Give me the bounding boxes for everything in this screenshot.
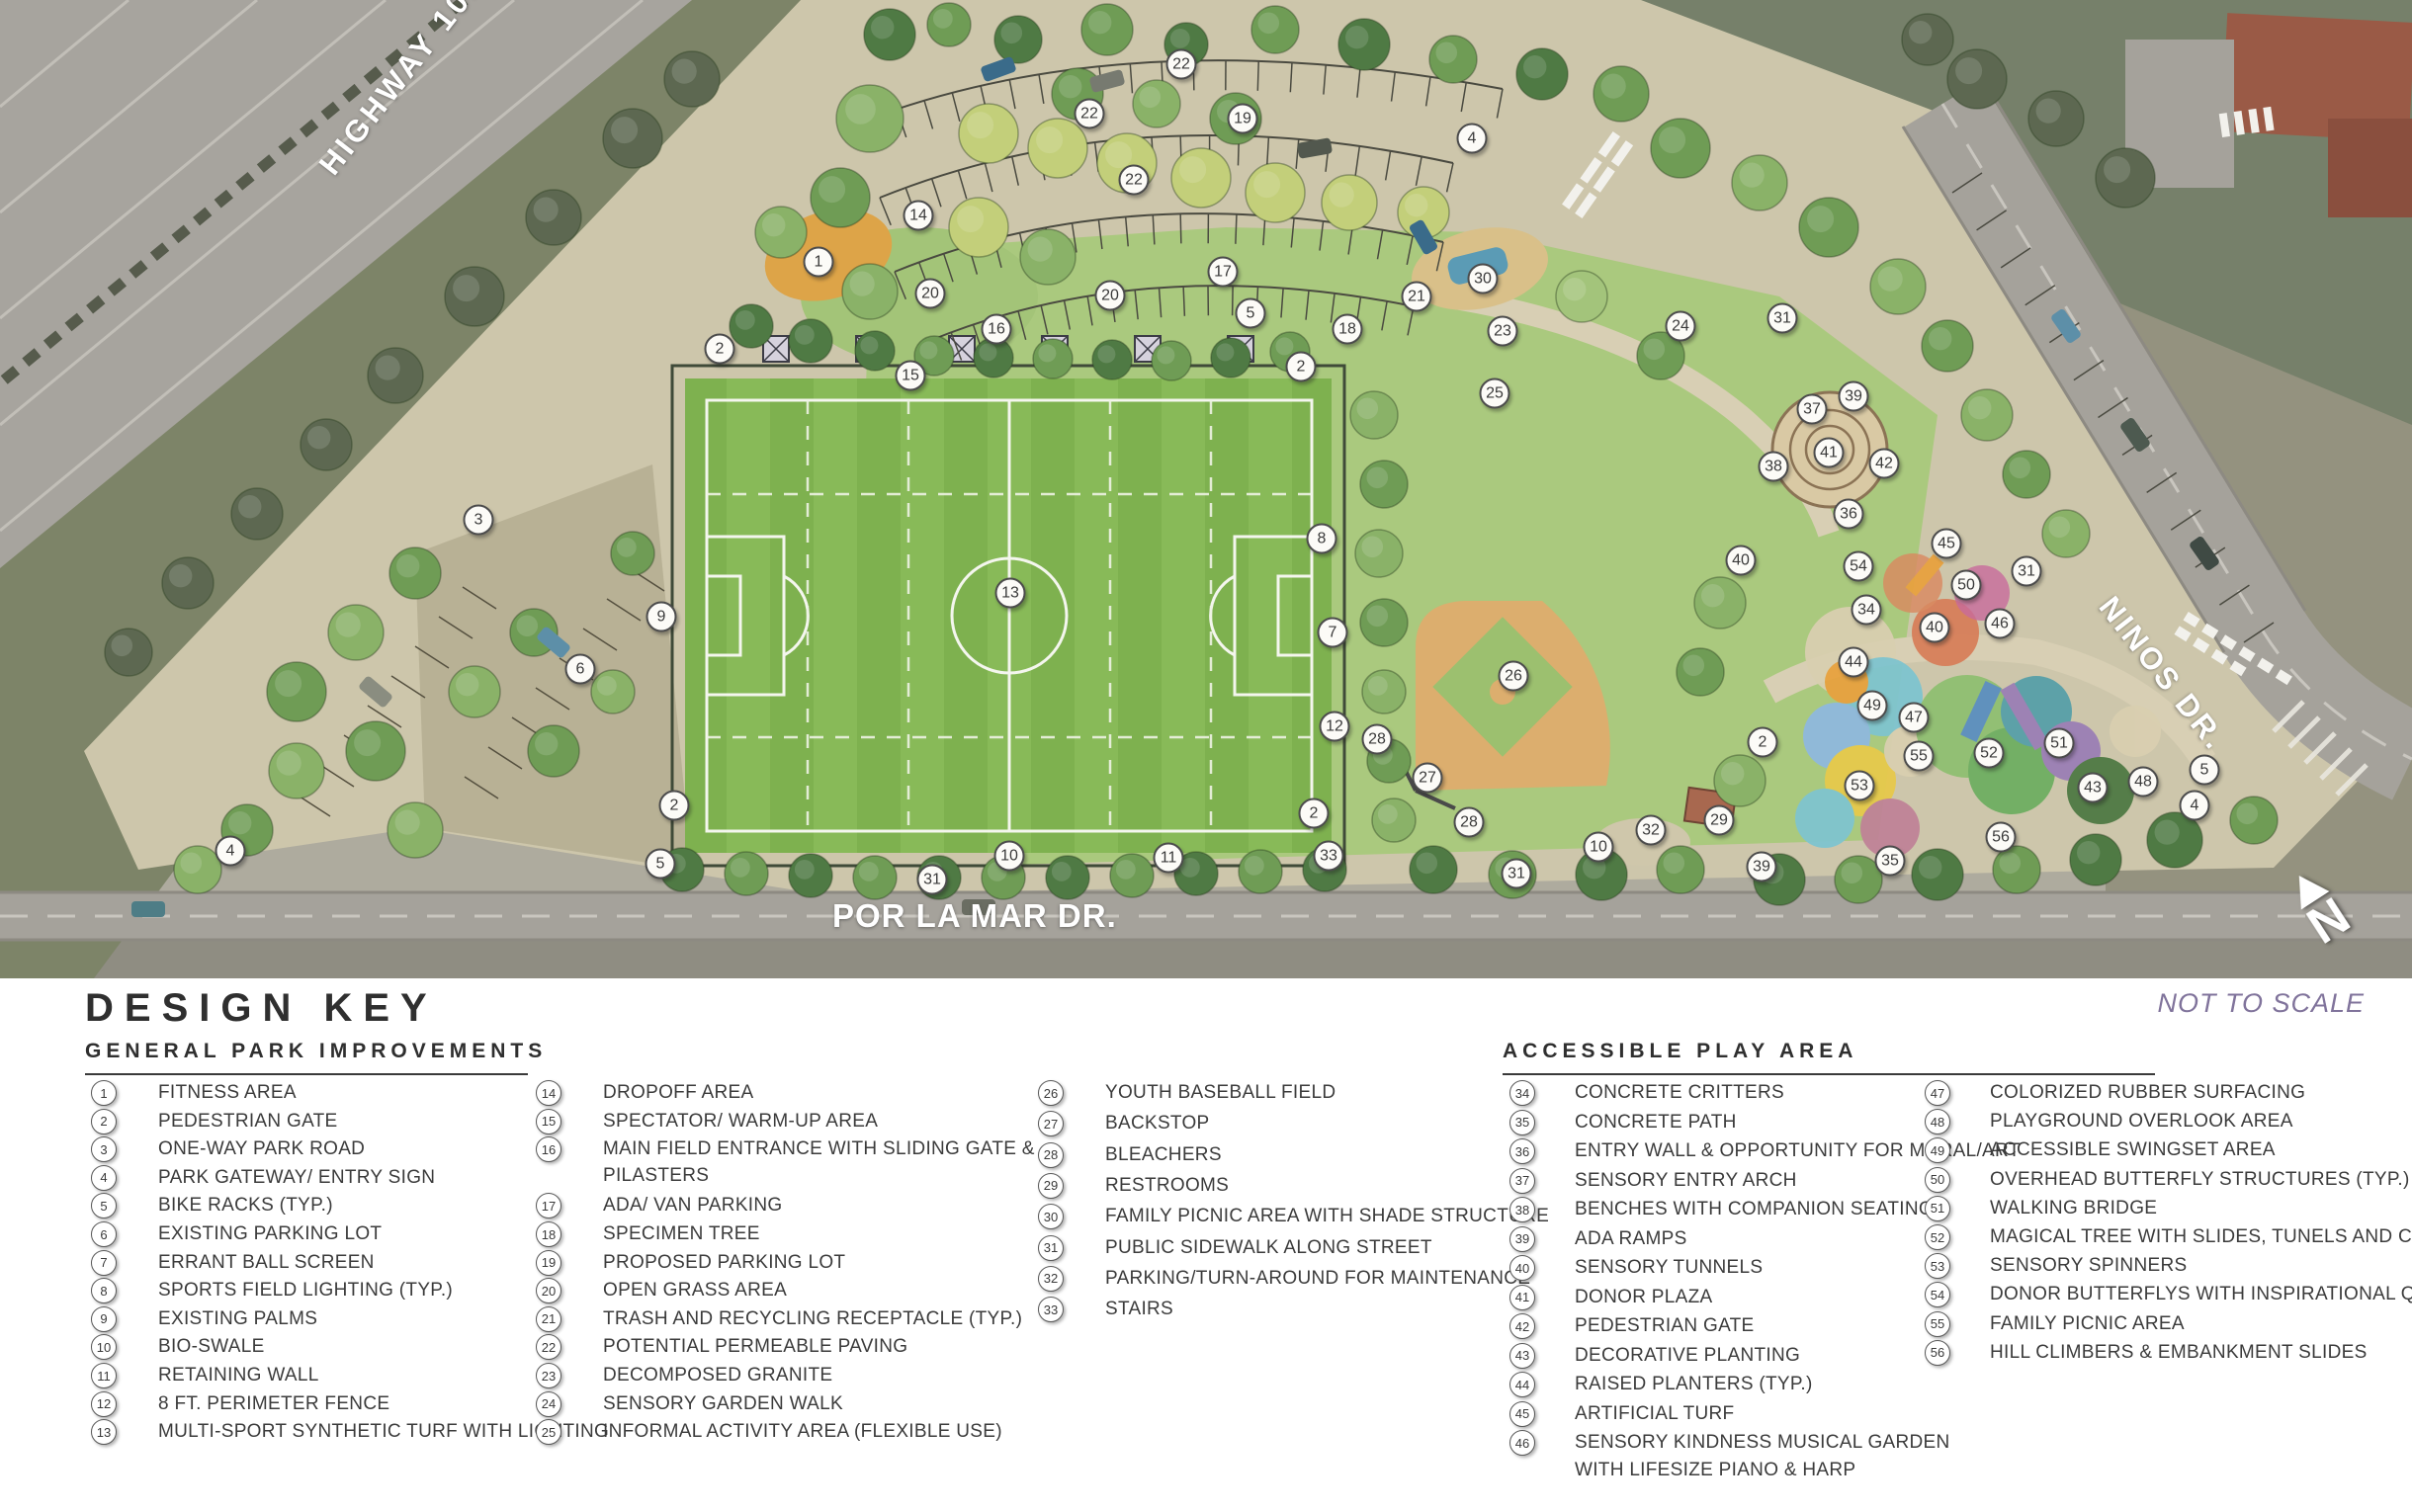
key-item-number: 53 <box>1925 1253 1950 1279</box>
key-item-label: EXISTING PALMS <box>158 1308 317 1330</box>
key-item-number: 39 <box>1509 1226 1535 1252</box>
plan-marker-36: 36 <box>1834 499 1864 530</box>
key-item-label: ERRANT BALL SCREEN <box>158 1252 375 1274</box>
plan-marker-34: 34 <box>1852 595 1882 626</box>
key-item-label: ARTIFICIAL TURF <box>1575 1403 1734 1425</box>
plan-marker-11: 11 <box>1154 843 1184 874</box>
plan-marker-31: 31 <box>2012 556 2042 587</box>
key-item-label: DONOR PLAZA <box>1575 1287 1713 1308</box>
plan-marker-49: 49 <box>1857 691 1888 721</box>
key-item-number: 10 <box>91 1334 117 1360</box>
plan-marker-40: 40 <box>1920 613 1950 643</box>
plan-marker-22: 22 <box>1166 49 1197 80</box>
plan-marker-44: 44 <box>1839 647 1869 678</box>
key-item-label: SENSORY ENTRY ARCH <box>1575 1170 1797 1192</box>
key-item-label: FAMILY PICNIC AREA WITH SHADE STRUCTURE <box>1105 1206 1549 1227</box>
key-item-number: 14 <box>536 1080 561 1106</box>
key-item-label: EXISTING PARKING LOT <box>158 1223 382 1245</box>
plan-marker-28: 28 <box>1454 807 1485 838</box>
plan-marker-28: 28 <box>1362 724 1393 755</box>
key-item-number: 1 <box>91 1080 117 1106</box>
key-item-label: SPORTS FIELD LIGHTING (TYP.) <box>158 1280 453 1302</box>
plan-marker-15: 15 <box>896 361 926 391</box>
key-item-label: BACKSTOP <box>1105 1113 1210 1134</box>
park-master-plan-page: HIGHWAY 101 POR LA MAR DR. NINOS DR. N 2… <box>0 0 2412 1512</box>
section-general-park-improvements: GENERAL PARK IMPROVEMENTS <box>85 1040 547 1063</box>
plan-marker-20: 20 <box>915 279 946 309</box>
key-item-label: PEDESTRIAN GATE <box>158 1111 338 1133</box>
plan-marker-31: 31 <box>1502 859 1532 889</box>
plan-marker-55: 55 <box>1904 741 1935 772</box>
key-item-label: 8 FT. PERIMETER FENCE <box>158 1393 389 1415</box>
key-item-label: DROPOFF AREA <box>603 1082 753 1104</box>
plan-marker-24: 24 <box>1666 311 1696 342</box>
key-item-label: TRASH AND RECYCLING RECEPTACLE (TYP.) <box>603 1308 1022 1330</box>
key-item-label: ONE-WAY PARK ROAD <box>158 1138 365 1160</box>
plan-marker-2: 2 <box>1748 727 1778 758</box>
key-item-number: 50 <box>1925 1167 1950 1193</box>
plan-marker-52: 52 <box>1974 738 2005 769</box>
plan-marker-6: 6 <box>565 654 596 685</box>
key-item-number: 32 <box>1038 1266 1064 1292</box>
plan-marker-2: 2 <box>1299 798 1330 829</box>
key-item-label: ADA/ VAN PARKING <box>603 1195 782 1217</box>
plan-marker-50: 50 <box>1951 570 1982 601</box>
plan-marker-14: 14 <box>904 201 934 231</box>
plan-marker-37: 37 <box>1797 394 1828 425</box>
plan-marker-19: 19 <box>1228 104 1258 134</box>
key-item-number: 30 <box>1038 1204 1064 1229</box>
plan-marker-42: 42 <box>1869 449 1900 479</box>
key-item-label: DECOMPOSED GRANITE <box>603 1365 832 1386</box>
plan-marker-4: 4 <box>2180 791 2210 821</box>
key-item-number: 5 <box>91 1193 117 1218</box>
plan-marker-45: 45 <box>1932 529 1962 559</box>
key-item-number: 35 <box>1509 1110 1535 1135</box>
plan-marker-27: 27 <box>1413 763 1443 794</box>
key-item-number: 29 <box>1038 1173 1064 1199</box>
site-plan: HIGHWAY 101 POR LA MAR DR. NINOS DR. N 2… <box>0 0 2412 978</box>
plan-marker-41: 41 <box>1814 438 1845 468</box>
plan-marker-46: 46 <box>1985 609 2016 639</box>
plan-marker-47: 47 <box>1899 703 1930 733</box>
key-item-label: HILL CLIMBERS & EMBANKMENT SLIDES <box>1990 1342 2368 1364</box>
plan-marker-53: 53 <box>1845 771 1875 801</box>
key-item-label: PILASTERS <box>603 1165 709 1187</box>
plan-marker-56: 56 <box>1986 822 2017 853</box>
key-item-number: 25 <box>536 1419 561 1445</box>
key-item-number: 48 <box>1925 1109 1950 1134</box>
key-item-number: 20 <box>536 1278 561 1303</box>
key-item-label: RAISED PLANTERS (TYP.) <box>1575 1374 1813 1395</box>
key-item-number: 42 <box>1509 1313 1535 1339</box>
key-item-label: WALKING BRIDGE <box>1990 1198 2157 1219</box>
key-item-label: SENSORY TUNNELS <box>1575 1257 1763 1279</box>
plan-marker-18: 18 <box>1333 314 1363 345</box>
plan-marker-20: 20 <box>1095 281 1126 311</box>
key-item-number: 15 <box>536 1109 561 1134</box>
plan-marker-2: 2 <box>1286 352 1317 382</box>
plan-marker-23: 23 <box>1488 316 1518 347</box>
plan-marker-22: 22 <box>1119 165 1150 196</box>
plan-marker-5: 5 <box>1236 298 1266 329</box>
plan-marker-12: 12 <box>1320 712 1350 742</box>
key-item-number: 6 <box>91 1221 117 1247</box>
key-item-number: 23 <box>536 1363 561 1388</box>
road-label-por-la-mar: POR LA MAR DR. <box>832 897 1117 935</box>
key-item-number: 45 <box>1509 1401 1535 1427</box>
key-item-label: POTENTIAL PERMEABLE PAVING <box>603 1336 907 1358</box>
key-item-label: BIO-SWALE <box>158 1336 265 1358</box>
key-item-number: 2 <box>91 1109 117 1134</box>
plan-marker-51: 51 <box>2044 728 2075 759</box>
key-item-number: 18 <box>536 1221 561 1247</box>
key-item-label: INFORMAL ACTIVITY AREA (FLEXIBLE USE) <box>603 1421 1002 1443</box>
key-item-label: FAMILY PICNIC AREA <box>1990 1313 2185 1335</box>
key-item-number: 17 <box>536 1193 561 1218</box>
key-item-number: 34 <box>1509 1080 1535 1106</box>
key-item-label: MAIN FIELD ENTRANCE WITH SLIDING GATE & <box>603 1138 1035 1160</box>
soccer-field <box>672 366 1344 866</box>
key-item-label: BIKE RACKS (TYP.) <box>158 1195 333 1217</box>
plan-marker-25: 25 <box>1480 378 1510 409</box>
plan-marker-22: 22 <box>1075 99 1105 129</box>
key-item-label: SENSORY SPINNERS <box>1990 1255 2187 1277</box>
key-item-label: ACCESSIBLE SWINGSET AREA <box>1990 1139 2276 1161</box>
plan-marker-8: 8 <box>1307 524 1337 554</box>
plan-marker-54: 54 <box>1844 551 1874 582</box>
plan-marker-5: 5 <box>646 849 676 880</box>
key-item-number: 16 <box>536 1136 561 1162</box>
key-item-number: 38 <box>1509 1197 1535 1222</box>
key-item-label: DONOR BUTTERFLYS WITH INSPIRATIONAL QUOT… <box>1990 1284 2412 1305</box>
key-item-number: 37 <box>1509 1168 1535 1194</box>
key-item-label: RESTROOMS <box>1105 1175 1229 1197</box>
key-item-label: PARK GATEWAY/ ENTRY SIGN <box>158 1167 435 1189</box>
section1-rule <box>85 1073 528 1075</box>
key-item-number: 44 <box>1509 1372 1535 1397</box>
plan-marker-32: 32 <box>1636 815 1667 846</box>
plan-marker-33: 33 <box>1314 841 1344 872</box>
key-item-number: 47 <box>1925 1080 1950 1106</box>
plan-marker-10: 10 <box>1584 832 1614 863</box>
plan-marker-26: 26 <box>1499 661 1529 692</box>
plan-marker-4: 4 <box>215 836 246 867</box>
key-item-number: 4 <box>91 1165 117 1191</box>
plan-marker-39: 39 <box>1747 852 1777 882</box>
key-item-number: 46 <box>1509 1430 1535 1456</box>
plan-marker-31: 31 <box>917 865 948 895</box>
key-item-label: OPEN GRASS AREA <box>603 1280 787 1302</box>
plan-marker-2: 2 <box>659 791 690 821</box>
key-item-number: 13 <box>91 1419 117 1445</box>
key-item-number: 7 <box>91 1250 117 1276</box>
key-item-number: 26 <box>1038 1080 1064 1106</box>
key-item-label: PLAYGROUND OVERLOOK AREA <box>1990 1111 2293 1133</box>
plan-marker-31: 31 <box>1767 303 1798 334</box>
plan-marker-43: 43 <box>2078 773 2109 803</box>
key-item-number: 24 <box>536 1391 561 1417</box>
key-item-number: 19 <box>536 1250 561 1276</box>
key-item-number: 33 <box>1038 1297 1064 1322</box>
plan-marker-1: 1 <box>804 247 834 278</box>
plan-marker-21: 21 <box>1402 282 1432 312</box>
key-item-number: 27 <box>1038 1111 1064 1136</box>
plan-marker-16: 16 <box>982 314 1012 345</box>
key-item-number: 36 <box>1509 1138 1535 1164</box>
key-item-number: 40 <box>1509 1255 1535 1281</box>
key-item-label: PEDESTRIAN GATE <box>1575 1315 1755 1337</box>
key-item-label: MAGICAL TREE WITH SLIDES, TUNELS AND CLI… <box>1990 1226 2412 1248</box>
key-item-label: DECORATIVE PLANTING <box>1575 1345 1800 1367</box>
plan-marker-7: 7 <box>1318 618 1348 648</box>
key-item-number: 28 <box>1038 1142 1064 1168</box>
plan-marker-48: 48 <box>2128 767 2159 798</box>
plan-marker-29: 29 <box>1704 805 1735 836</box>
key-item-number: 12 <box>91 1391 117 1417</box>
plan-marker-30: 30 <box>1468 264 1499 294</box>
key-item-label: SPECTATOR/ WARM-UP AREA <box>603 1111 878 1133</box>
plan-marker-39: 39 <box>1839 381 1869 412</box>
section-accessible-play-area: ACCESSIBLE PLAY AREA <box>1503 1040 1857 1063</box>
key-item-number: 49 <box>1925 1137 1950 1163</box>
key-item-label: WITH LIFESIZE PIANO & HARP <box>1575 1460 1855 1481</box>
key-item-number: 8 <box>91 1278 117 1303</box>
key-item-label: CONCRETE CRITTERS <box>1575 1082 1784 1104</box>
key-item-number: 11 <box>91 1363 117 1388</box>
key-item-label: BENCHES WITH COMPANION SEATING <box>1575 1199 1934 1220</box>
key-item-label: CONCRETE PATH <box>1575 1112 1737 1134</box>
section2-rule <box>1503 1073 2155 1075</box>
key-item-number: 55 <box>1925 1311 1950 1337</box>
plan-marker-38: 38 <box>1759 452 1789 482</box>
plan-marker-40: 40 <box>1726 546 1757 576</box>
design-key: DESIGN KEY GENERAL PARK IMPROVEMENTS ACC… <box>0 978 2412 1512</box>
plan-marker-3: 3 <box>464 505 494 536</box>
key-item-label: SENSORY KINDNESS MUSICAL GARDEN <box>1575 1432 1950 1454</box>
key-item-number: 31 <box>1038 1235 1064 1261</box>
key-item-label: COLORIZED RUBBER SURFACING <box>1990 1082 2305 1104</box>
design-key-title: DESIGN KEY <box>85 986 438 1031</box>
key-item-label: PROPOSED PARKING LOT <box>603 1252 845 1274</box>
key-item-label: YOUTH BASEBALL FIELD <box>1105 1082 1335 1104</box>
plan-marker-4: 4 <box>1457 124 1488 154</box>
plan-marker-5: 5 <box>2190 755 2220 786</box>
key-item-label: SENSORY GARDEN WALK <box>603 1393 843 1415</box>
key-item-number: 3 <box>91 1136 117 1162</box>
key-item-label: STAIRS <box>1105 1299 1173 1320</box>
key-item-label: SPECIMEN TREE <box>603 1223 760 1245</box>
key-item-number: 22 <box>536 1334 561 1360</box>
key-item-label: OVERHEAD BUTTERFLY STRUCTURES (TYP.) <box>1990 1169 2410 1191</box>
plan-marker-2: 2 <box>705 334 735 365</box>
key-item-number: 56 <box>1925 1340 1950 1366</box>
key-item-label: ENTRY WALL & OPPORTUNITY FOR MURAL/ART <box>1575 1140 2021 1162</box>
key-item-number: 21 <box>536 1306 561 1332</box>
key-item-number: 51 <box>1925 1196 1950 1221</box>
key-item-number: 52 <box>1925 1224 1950 1250</box>
plan-marker-17: 17 <box>1208 257 1239 288</box>
key-item-number: 9 <box>91 1306 117 1332</box>
key-item-label: PARKING/TURN-AROUND FOR MAINTENANCE <box>1105 1268 1530 1290</box>
plan-marker-9: 9 <box>646 602 677 632</box>
key-item-label: BLEACHERS <box>1105 1144 1222 1166</box>
plan-marker-10: 10 <box>994 841 1025 872</box>
key-item-label: ADA RAMPS <box>1575 1228 1687 1250</box>
key-item-number: 41 <box>1509 1285 1535 1310</box>
not-to-scale-note: NOT TO SCALE <box>2157 988 2365 1019</box>
key-item-number: 43 <box>1509 1343 1535 1369</box>
plan-marker-35: 35 <box>1875 846 1906 877</box>
key-item-label: PUBLIC SIDEWALK ALONG STREET <box>1105 1237 1432 1259</box>
plan-marker-13: 13 <box>995 578 1026 609</box>
key-item-number: 54 <box>1925 1282 1950 1307</box>
key-item-label: FITNESS AREA <box>158 1082 297 1104</box>
key-item-label: RETAINING WALL <box>158 1365 319 1386</box>
